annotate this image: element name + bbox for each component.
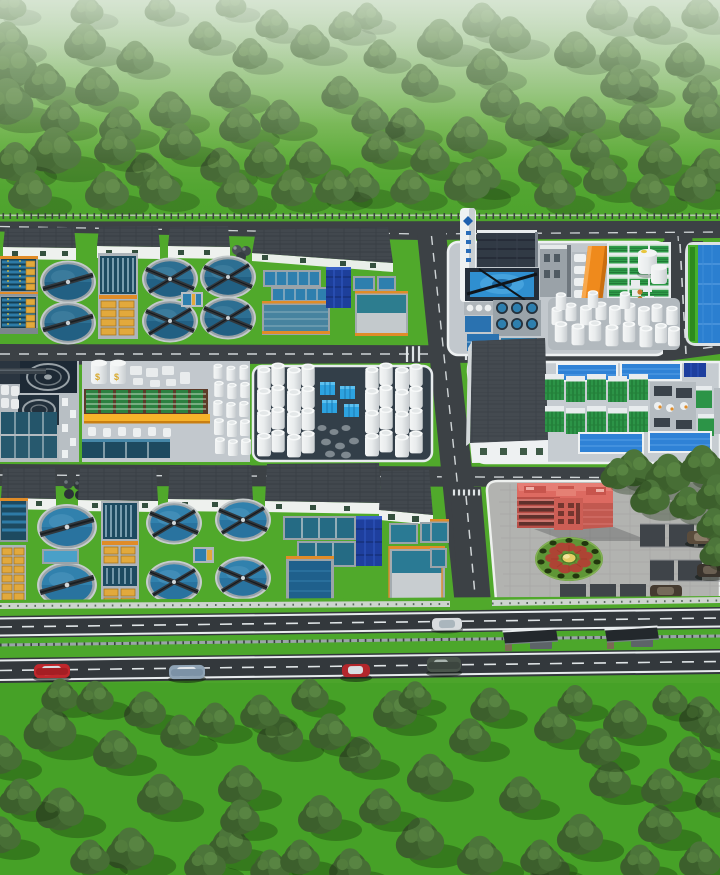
svg-text:$: $ (114, 372, 119, 382)
svg-text:$: $ (95, 372, 100, 382)
